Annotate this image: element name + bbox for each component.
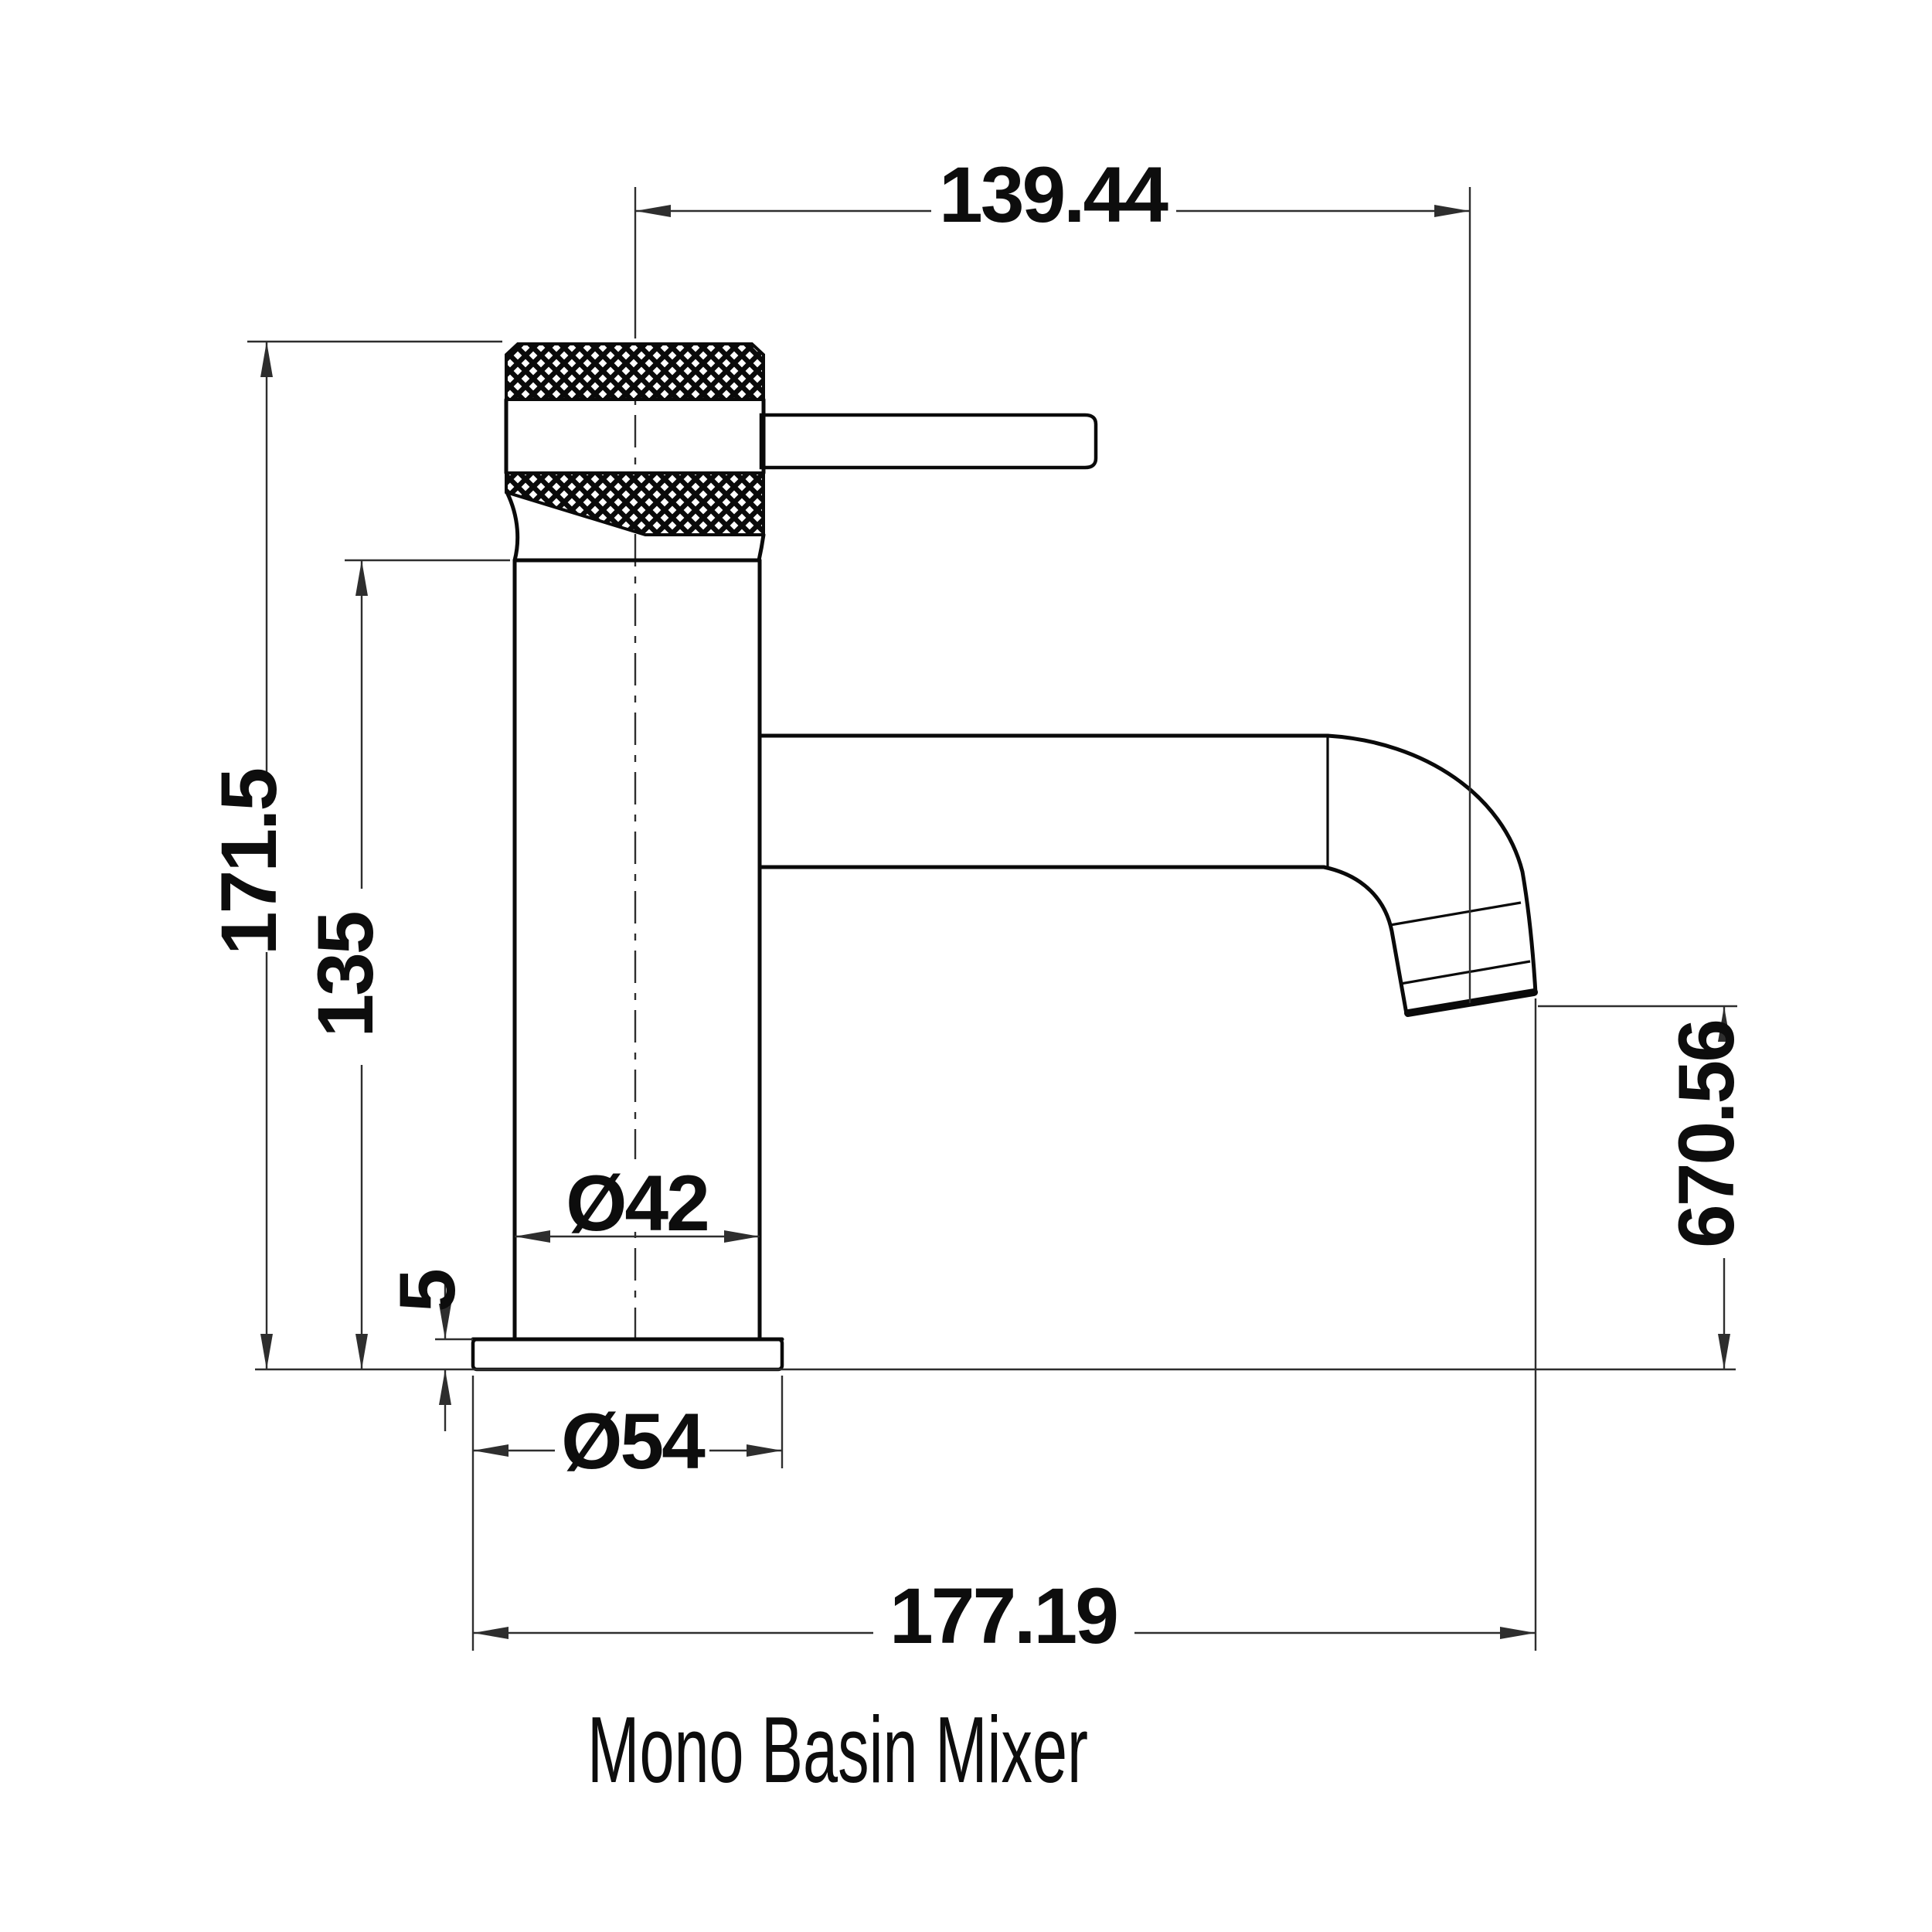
handle-lever [761,415,1096,468]
dimension-outlet-height: 670.56 [1662,1006,1750,1369]
neck-curve-right [759,535,764,560]
dimension-overall-depth: 177.19 [473,1572,1536,1660]
mono-basin-mixer-drawing: 139.44 171.5 135 Ø42 [0,0,1932,1932]
neck-curve-left [507,492,518,560]
dim-base-thickness-value: 5 [383,1270,471,1312]
dim-overall-depth-value: 177.19 [889,1572,1117,1660]
drawing-sheet: 139.44 171.5 135 Ø42 [0,0,1932,1932]
dimension-annotations: 139.44 171.5 135 Ø42 [205,151,1750,1660]
dim-base-diameter-value: Ø54 [561,1397,706,1485]
base-plate [473,1339,782,1369]
spout-outer-curve [1328,736,1536,993]
aerator-ring-upper [1390,903,1521,925]
dimension-spout-reach: 139.44 [635,151,1470,239]
dimension-body-diameter: Ø42 [515,1159,760,1247]
spout-outlet-face [1408,992,1534,1013]
dim-overall-height-value: 171.5 [205,770,293,956]
dimension-base-diameter: Ø54 [473,1397,782,1485]
drawing-title: Mono Basin Mixer [587,1697,1088,1802]
head-knurl-top-band [506,344,764,400]
head-knurl-bottom-band [506,473,764,535]
dim-body-height-value: 135 [301,913,389,1037]
spout-inner-curve [1324,867,1406,1014]
aerator-ring-lower [1400,961,1530,984]
dim-spout-reach-value: 139.44 [939,151,1168,239]
dimension-body-height: 135 [301,560,389,1369]
dimension-base-thickness: 5 [383,1270,471,1431]
dim-outlet-height-value: 670.56 [1662,1021,1750,1248]
dimension-overall-height: 171.5 [205,342,293,1369]
dim-body-diameter-value: Ø42 [566,1159,708,1247]
